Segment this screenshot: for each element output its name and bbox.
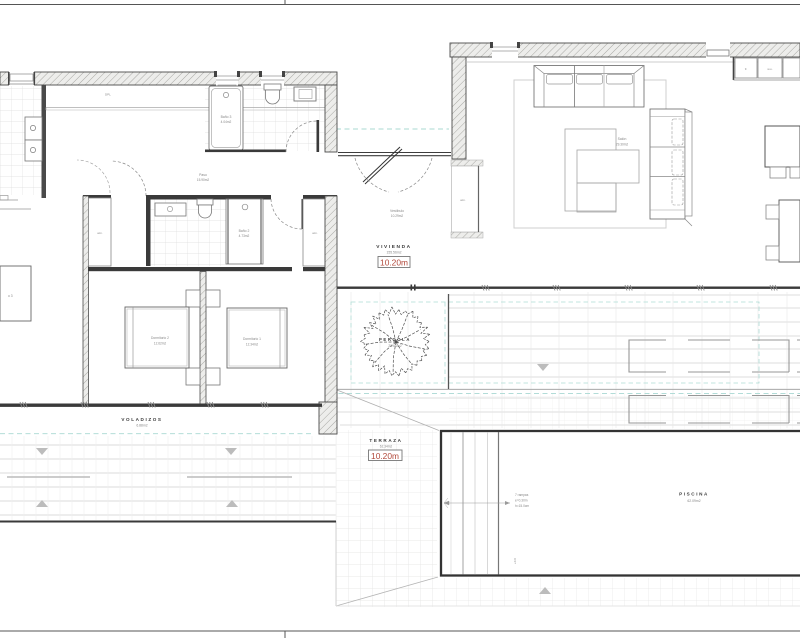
svg-text:Salón: Salón — [618, 137, 627, 141]
svg-text:6.88m2: 6.88m2 — [136, 424, 147, 428]
svg-text:PISCINA: PISCINA — [679, 492, 709, 497]
svg-text:15.90m2: 15.90m2 — [197, 178, 210, 182]
svg-text:62.09m2: 62.09m2 — [687, 499, 700, 503]
svg-text:155.56m2: 155.56m2 — [386, 251, 401, 255]
svg-text:7 rampas: 7 rampas — [515, 493, 529, 497]
svg-text:10.20m: 10.20m — [380, 257, 408, 267]
svg-text:PERGOLA: PERGOLA — [379, 337, 411, 342]
svg-text:29.30m2: 29.30m2 — [616, 143, 629, 147]
svg-text:DPL: DPL — [105, 93, 111, 97]
svg-text:VIVIENDA: VIVIENDA — [376, 244, 411, 250]
svg-text:Baño 2: Baño 2 — [239, 229, 250, 233]
svg-text:20.64m2: 20.64m2 — [388, 344, 401, 348]
svg-text:62.34m2: 62.34m2 — [380, 445, 393, 449]
svg-text:+0.0: +0.0 — [513, 558, 517, 564]
svg-text:arm.: arm. — [312, 231, 318, 235]
svg-text:TERRAZA: TERRAZA — [369, 438, 402, 443]
svg-text:h=15.0cm: h=15.0cm — [515, 504, 529, 508]
svg-text:Baño 3: Baño 3 — [221, 115, 232, 119]
svg-text:o 3: o 3 — [8, 294, 13, 298]
svg-text:VOLADIZOS: VOLADIZOS — [121, 417, 162, 422]
svg-text:e=0.30m: e=0.30m — [515, 499, 528, 503]
svg-text:Paso: Paso — [199, 173, 207, 177]
svg-text:10.20m: 10.20m — [371, 451, 399, 461]
svg-text:w.o.: w.o. — [767, 67, 773, 71]
svg-text:Dormitorio 1: Dormitorio 1 — [243, 337, 261, 341]
svg-text:Vestíbulo: Vestíbulo — [390, 209, 404, 213]
svg-text:4.04m2: 4.04m2 — [221, 120, 232, 124]
svg-text:4.73m2: 4.73m2 — [239, 234, 250, 238]
svg-text:Dormitorio 2: Dormitorio 2 — [151, 336, 169, 340]
svg-text:12.34m2: 12.34m2 — [246, 343, 259, 347]
svg-text:arm.: arm. — [97, 231, 103, 235]
svg-text:arm.: arm. — [460, 198, 466, 202]
svg-text:12.62m2: 12.62m2 — [154, 342, 167, 346]
svg-text:10.29m2: 10.29m2 — [391, 214, 404, 218]
svg-text:fr.: fr. — [745, 67, 748, 71]
